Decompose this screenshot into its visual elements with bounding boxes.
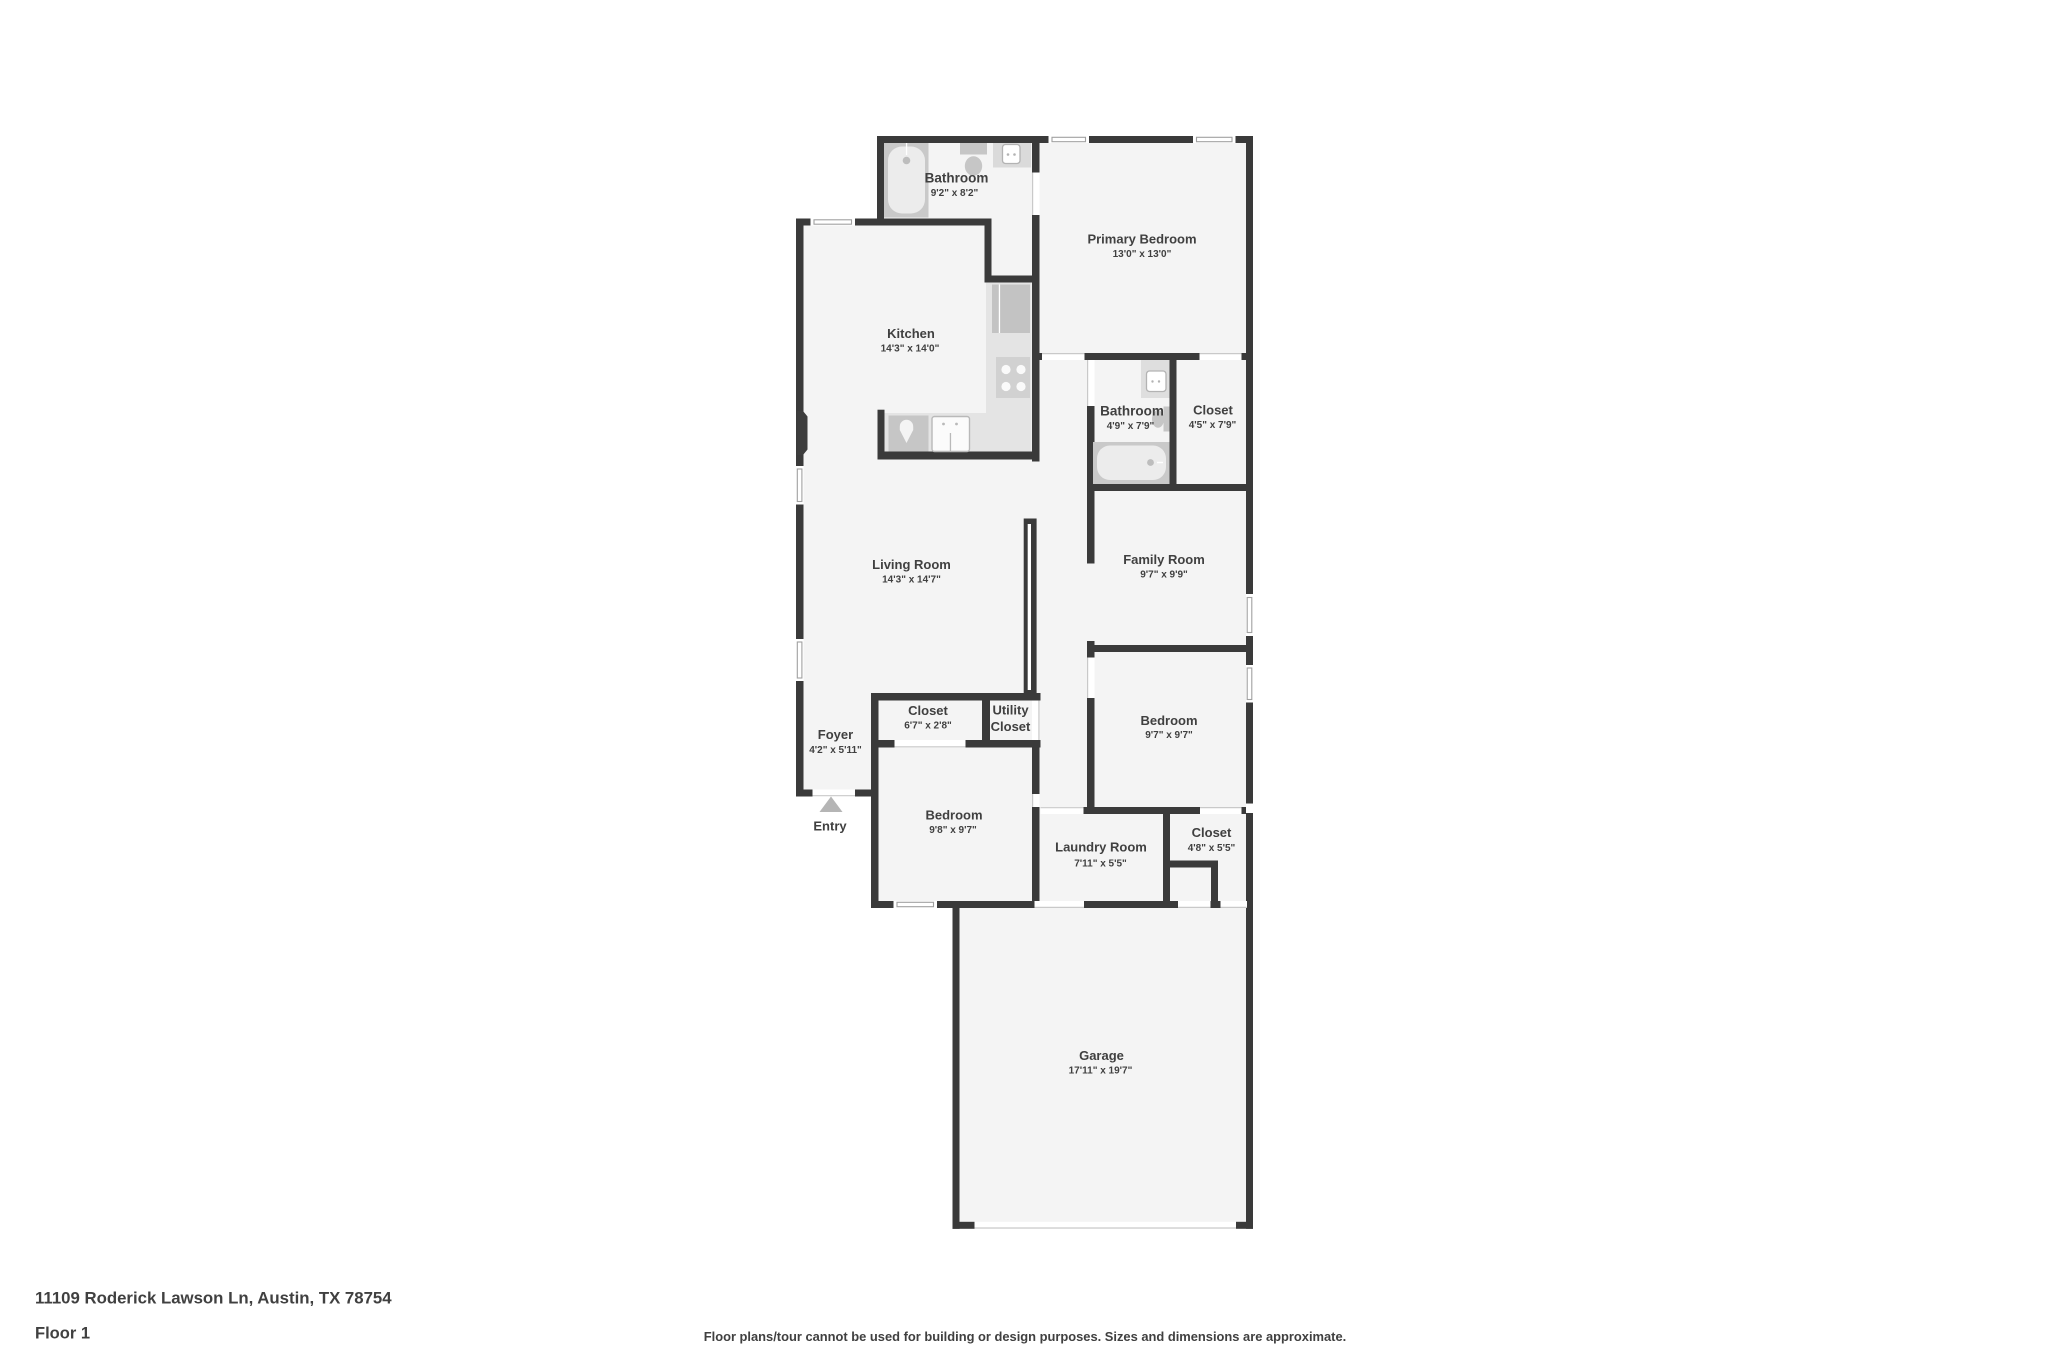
- svg-text:Living Room: Living Room: [872, 557, 951, 572]
- svg-text:6'7" x 2'8": 6'7" x 2'8": [904, 721, 952, 732]
- svg-text:Closet: Closet: [991, 719, 1031, 734]
- svg-text:4'2" x 5'11": 4'2" x 5'11": [809, 745, 862, 756]
- svg-text:Entry: Entry: [813, 819, 847, 834]
- svg-text:11109 Roderick Lawson Ln, Aust: 11109 Roderick Lawson Ln, Austin, TX 787…: [35, 1288, 392, 1307]
- svg-text:Family Room: Family Room: [1123, 552, 1205, 567]
- svg-text:14'3" x 14'0": 14'3" x 14'0": [881, 344, 940, 355]
- svg-text:Floor 1: Floor 1: [35, 1325, 90, 1343]
- svg-text:Bedroom: Bedroom: [1140, 713, 1197, 728]
- svg-text:Closet: Closet: [1192, 825, 1232, 840]
- svg-text:Laundry Room: Laundry Room: [1055, 840, 1147, 855]
- svg-text:Closet: Closet: [908, 703, 948, 718]
- svg-text:Closet: Closet: [1193, 403, 1233, 418]
- svg-text:14'3" x 14'7": 14'3" x 14'7": [882, 575, 941, 586]
- svg-text:7'11" x 5'5": 7'11" x 5'5": [1074, 859, 1127, 870]
- svg-text:Bathroom: Bathroom: [1100, 404, 1164, 419]
- svg-text:Utility: Utility: [992, 703, 1029, 718]
- svg-text:9'7" x 9'7": 9'7" x 9'7": [1145, 730, 1193, 741]
- svg-text:Bedroom: Bedroom: [925, 808, 982, 823]
- svg-text:17'11" x 19'7": 17'11" x 19'7": [1069, 1066, 1133, 1077]
- svg-text:Garage: Garage: [1079, 1048, 1124, 1063]
- svg-text:9'7" x 9'9": 9'7" x 9'9": [1140, 570, 1188, 581]
- svg-text:4'5" x 7'9": 4'5" x 7'9": [1189, 420, 1237, 431]
- svg-text:Bathroom: Bathroom: [925, 171, 989, 186]
- svg-text:Kitchen: Kitchen: [887, 326, 935, 341]
- svg-text:Foyer: Foyer: [818, 727, 853, 742]
- svg-text:4'9" x 7'9": 4'9" x 7'9": [1107, 421, 1155, 432]
- svg-text:Primary Bedroom: Primary Bedroom: [1087, 232, 1196, 247]
- svg-text:9'8" x 9'7": 9'8" x 9'7": [929, 825, 977, 836]
- svg-text:Floor plans/tour cannot be use: Floor plans/tour cannot be used for buil…: [704, 1329, 1346, 1344]
- svg-text:13'0" x 13'0": 13'0" x 13'0": [1113, 249, 1172, 260]
- svg-text:9'2" x 8'2": 9'2" x 8'2": [931, 188, 979, 199]
- svg-text:4'8" x 5'5": 4'8" x 5'5": [1188, 843, 1236, 854]
